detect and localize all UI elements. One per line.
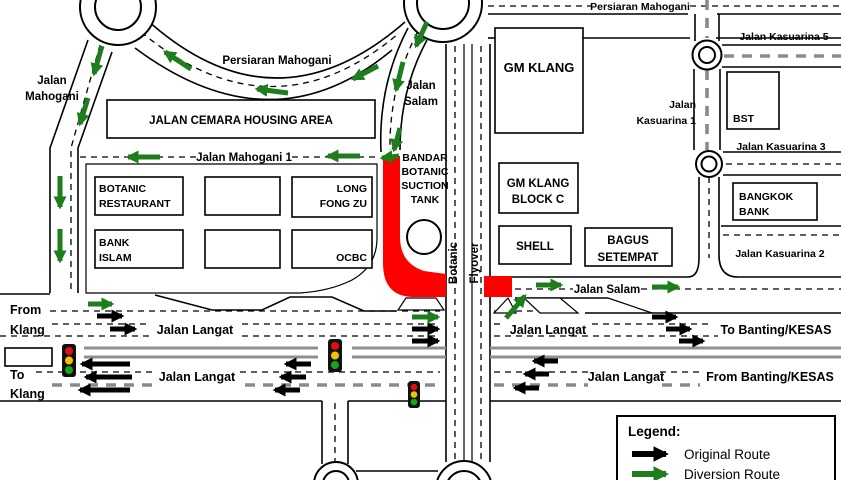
legend-title: Legend: xyxy=(628,424,681,439)
road-label-jalan-mahogani-1line: Jalan xyxy=(37,75,66,87)
direction-label-from-klang-2: Klang xyxy=(10,323,45,337)
direction-label-to-klang-1: To xyxy=(10,368,25,382)
direction-label-to-banting: To Banting/KESAS xyxy=(721,323,832,337)
map-canvas: Persiaran Mahogani Persiaran Mahogani Ja… xyxy=(0,0,841,480)
road-label-jalan-kasuarina-3: Jalan Kasuarina 3 xyxy=(736,141,825,153)
place-label-bank-islam-2: ISLAM xyxy=(99,252,132,264)
legend-diversion-label: Diversion Route xyxy=(684,467,780,480)
road-label-jalan-langat-sw: Jalan Langat xyxy=(159,370,236,384)
place-label-bagus-1: BAGUS xyxy=(607,235,649,247)
roundabout-south-small xyxy=(314,462,358,480)
place-label-shell: SHELL xyxy=(516,241,554,253)
road-label-jalan-mahogani-2line: Mahogani xyxy=(25,91,79,103)
place-label-long-fong-zu-2: FONG ZU xyxy=(320,198,367,210)
direction-label-from-banting: From Banting/KESAS xyxy=(706,370,834,384)
road-label-jalan-salam-upper-2: Salam xyxy=(404,96,438,108)
road-label-botanic-flyover-1: Botanic xyxy=(448,241,460,284)
place-label-gm-klang-block-c-1: GM KLANG xyxy=(507,178,570,190)
suction-tank-circle xyxy=(407,220,441,254)
road-label-jalan-langat-ne: Jalan Langat xyxy=(510,323,587,337)
road-label-jalan-mahogani-1: Jalan Mahogani 1 xyxy=(196,152,292,164)
place-label-housing-area: JALAN CEMARA HOUSING AREA xyxy=(149,115,333,127)
legend-box: Legend: Original Route Diversion Route xyxy=(617,416,835,480)
place-label-bangkok-bank-1: BANGKOK xyxy=(739,191,794,203)
place-label-suction-tank-2: BOTANIC xyxy=(401,166,448,178)
road-label-persiaran-mahogani-east: Persiaran Mahogani xyxy=(590,1,690,13)
place-label-bank-islam-1: BANK xyxy=(99,237,130,249)
road-label-jalan-kasuarina-2: Jalan Kasuarina 2 xyxy=(735,248,824,260)
road-label-jalan-langat-se: Jalan Langat xyxy=(588,370,665,384)
direction-label-to-klang-2: Klang xyxy=(10,387,45,401)
direction-label-from-klang-1: From xyxy=(10,303,41,317)
place-label-botanic-restaurant-1: BOTANIC xyxy=(99,183,146,195)
roundabout-kasuarina-5 xyxy=(693,41,722,70)
building-unnamed-2 xyxy=(205,230,280,268)
road-label-persiaran-mahogani-west: Persiaran Mahogani xyxy=(222,55,331,67)
traffic-light-icon-center xyxy=(328,339,342,372)
diversion-map: Persiaran Mahogani Persiaran Mahogani Ja… xyxy=(0,0,841,480)
road-label-jalan-salam: Jalan Salam xyxy=(574,284,640,296)
place-label-suction-tank-1: BANDAR xyxy=(402,152,448,164)
place-label-botanic-restaurant-2: RESTAURANT xyxy=(99,198,171,210)
place-label-long-fong-zu-1: LONG xyxy=(337,183,367,195)
roundabout-kasuarina-3 xyxy=(696,151,722,177)
place-label-bagus-2: SETEMPAT xyxy=(598,252,659,264)
roundabout-northwest xyxy=(80,0,156,45)
place-label-suction-tank-4: TANK xyxy=(411,194,440,206)
traffic-light-icon-west xyxy=(62,344,76,377)
place-label-bst: BST xyxy=(733,113,755,125)
road-label-jalan-salam-upper-1: Jalan xyxy=(406,80,435,92)
place-label-suction-tank-3: SUCTION xyxy=(401,180,448,192)
legend-original-label: Original Route xyxy=(684,447,770,462)
road-label-jalan-kasuarina-1-line2: Kasuarina 1 xyxy=(636,115,696,127)
place-label-bangkok-bank-2: BANK xyxy=(739,206,770,218)
roundabout-south-flyover xyxy=(436,461,492,480)
building-unnamed-1 xyxy=(205,177,280,215)
traffic-light-icon-flyover xyxy=(408,381,420,408)
road-label-jalan-langat-nw: Jalan Langat xyxy=(157,323,234,337)
road-label-botanic-flyover-2: Flyover xyxy=(469,242,481,283)
road-label-jalan-kasuarina-1-line1: Jalan xyxy=(669,99,696,111)
place-label-ocbc: OCBC xyxy=(336,252,367,264)
place-label-gm-klang: GM KLANG xyxy=(504,60,575,75)
road-label-jalan-kasuarina-5: Jalan Kasuarina 5 xyxy=(739,31,828,43)
building-gm-klang xyxy=(495,28,583,133)
place-label-gm-klang-block-c-2: BLOCK C xyxy=(512,194,564,206)
median-sign xyxy=(5,348,52,366)
